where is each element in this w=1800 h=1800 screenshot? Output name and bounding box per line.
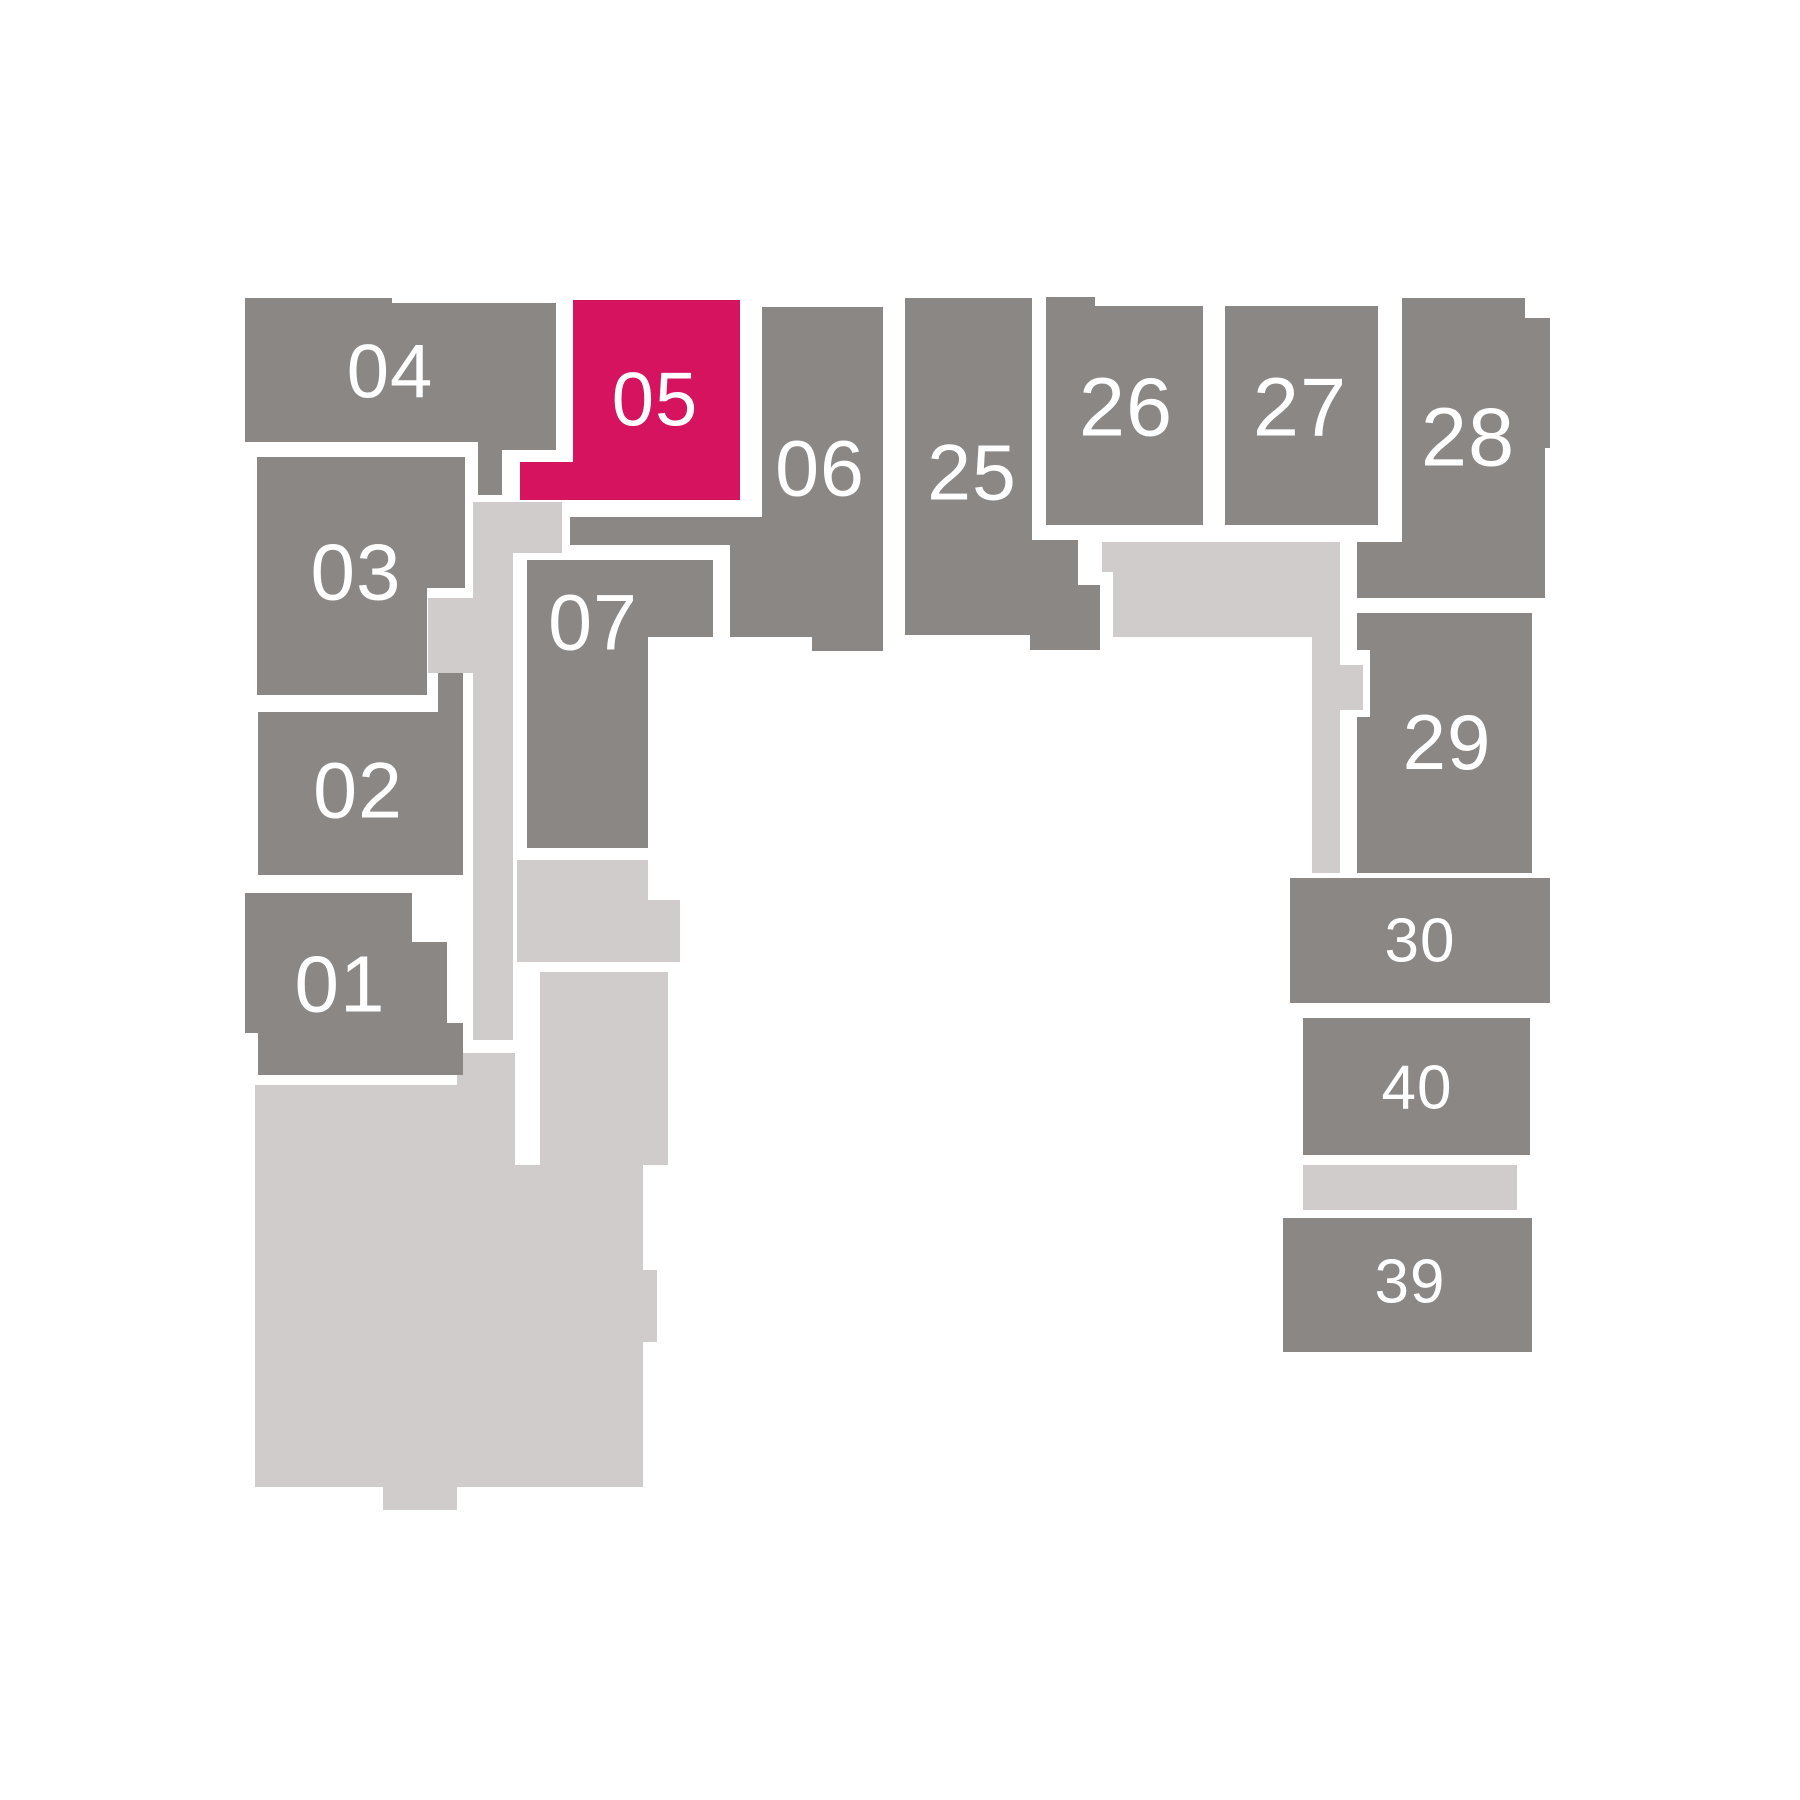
unit-40-label: 40 [1382, 1054, 1453, 1123]
floorplan-svg: 040506030702012526272829304039 [0, 0, 1800, 1800]
unit-28-label: 28 [1421, 391, 1515, 484]
unit-30[interactable]: 30 [1290, 878, 1550, 1003]
floorplan-page: 040506030702012526272829304039 [0, 0, 1800, 1800]
unit-39[interactable]: 39 [1283, 1218, 1532, 1352]
unit-27-label: 27 [1253, 361, 1347, 454]
common-area-corridor-east [1102, 542, 1363, 873]
unit-05-label: 05 [612, 358, 699, 443]
unit-07-label: 07 [548, 578, 638, 667]
unit-28[interactable]: 28 [1357, 298, 1550, 598]
unit-40[interactable]: 40 [1303, 1018, 1530, 1155]
unit-29-label: 29 [1403, 698, 1492, 786]
unit-04-label: 04 [347, 330, 434, 415]
unit-01-label: 01 [295, 940, 386, 1029]
unit-25-label: 25 [927, 428, 1017, 517]
unit-30-label: 30 [1385, 907, 1456, 976]
unit-06-label: 06 [775, 424, 865, 513]
unit-26-label: 26 [1079, 361, 1173, 454]
unit-26[interactable]: 26 [1046, 297, 1203, 525]
unit-07[interactable]: 07 [527, 560, 713, 848]
unit-29[interactable]: 29 [1357, 613, 1532, 873]
common-area-strip-east [1303, 1165, 1517, 1210]
unit-03-label: 03 [311, 528, 402, 617]
common-area-landing-mid [517, 860, 680, 962]
unit-01[interactable]: 01 [245, 893, 463, 1075]
unit-02-label: 02 [313, 746, 403, 835]
unit-39-label: 39 [1375, 1248, 1446, 1317]
unit-27[interactable]: 27 [1225, 306, 1378, 525]
unit-02[interactable]: 02 [258, 673, 463, 875]
